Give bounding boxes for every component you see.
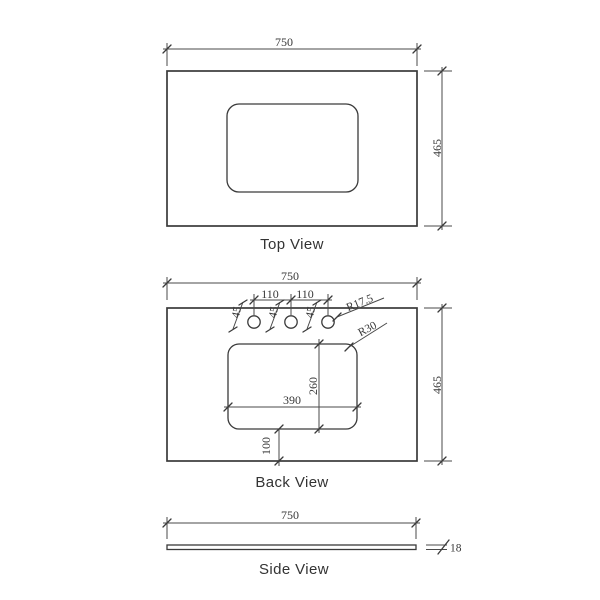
top-view: 750 465 Top View <box>163 35 452 253</box>
back-view-width-dim: 750 <box>281 269 299 283</box>
side-view-thickness-dim: 18 <box>450 543 462 555</box>
cutout-corner-radius-callout: R30 <box>356 319 379 339</box>
back-view-dimension-ticks <box>163 279 446 465</box>
side-view-label: Side View <box>259 561 329 578</box>
cutout-width-dim: 390 <box>283 393 301 407</box>
hole-radius-callout: R17.5 <box>345 292 375 314</box>
hole-spacing-right-dim: 110 <box>296 287 314 301</box>
cutout-bottom-offset-dim: 100 <box>259 437 273 455</box>
back-view-label: Back View <box>255 474 328 491</box>
top-view-label: Top View <box>260 236 324 253</box>
top-view-width-dim: 750 <box>275 35 293 49</box>
hole-spacing-left-dim: 110 <box>261 287 279 301</box>
back-view-outline <box>167 308 417 461</box>
side-view-width-dim: 750 <box>281 508 299 522</box>
top-view-outline <box>167 71 417 226</box>
back-view-depth-dim: 465 <box>430 376 444 394</box>
back-view: 750 110 110 45 45 45 R17.5 R30 390 260 1… <box>163 269 452 491</box>
side-view-outline <box>167 545 416 550</box>
top-view-depth-dim: 465 <box>430 139 444 157</box>
top-view-sink-cutout <box>227 104 358 192</box>
drawing-page: 750 465 Top View 750 110 110 45 45 45 R1… <box>0 0 600 600</box>
side-view: 750 18 Side View <box>163 508 462 578</box>
back-view-sink-cutout <box>228 344 357 429</box>
tap-hole-center <box>285 316 297 328</box>
back-view-dimension-lines <box>163 277 452 466</box>
vanity-top-technical-drawing: 750 465 Top View 750 110 110 45 45 45 R1… <box>0 0 600 600</box>
top-view-dimension-ticks <box>163 45 446 230</box>
tap-hole-right <box>322 316 334 328</box>
tap-hole-left <box>248 316 260 328</box>
side-view-dimension-ticks <box>163 519 449 554</box>
cutout-depth-dim: 260 <box>306 377 320 395</box>
